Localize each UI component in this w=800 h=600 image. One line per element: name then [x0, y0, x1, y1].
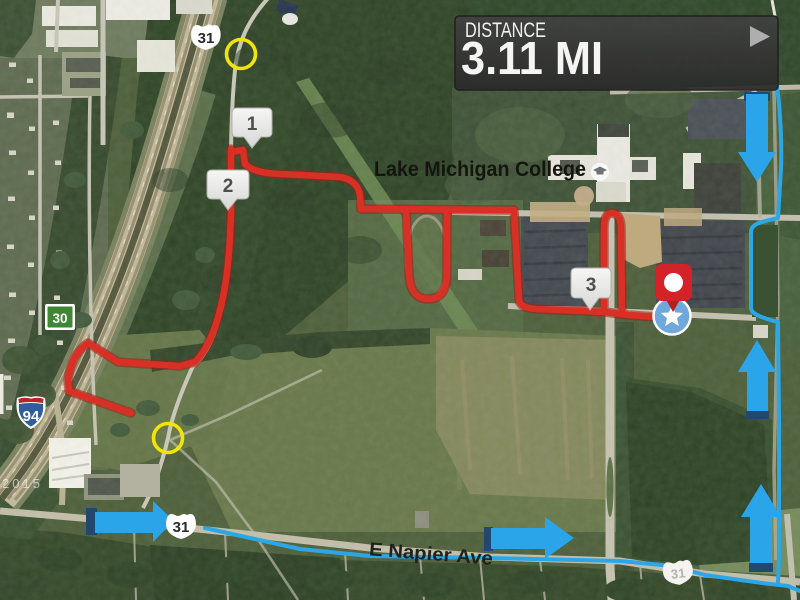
- svg-text:3.11 MI: 3.11 MI: [461, 32, 603, 84]
- svg-text:2015: 2015: [2, 476, 43, 491]
- svg-text:30: 30: [52, 311, 67, 326]
- svg-text:3: 3: [586, 275, 597, 296]
- svg-text:Lake Michigan College: Lake Michigan College: [374, 158, 586, 181]
- svg-text:31: 31: [173, 519, 190, 536]
- svg-text:31: 31: [198, 30, 215, 47]
- svg-text:94: 94: [23, 408, 40, 425]
- svg-text:1: 1: [247, 114, 258, 135]
- svg-text:31: 31: [670, 565, 686, 582]
- svg-text:2: 2: [223, 176, 234, 197]
